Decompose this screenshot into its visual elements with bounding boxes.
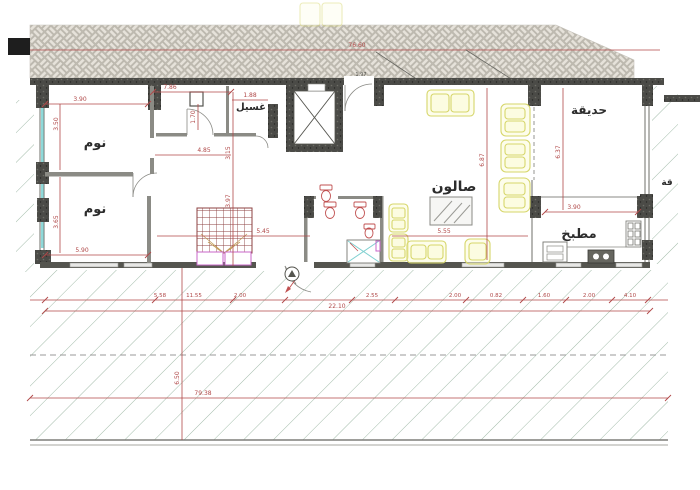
dim-row1-5: 0.82: [490, 293, 502, 299]
room-label-salon: صالون: [432, 179, 477, 195]
dim-hall-height: 1.70: [190, 110, 197, 124]
glazing-strip-1: [41, 100, 44, 168]
room-label-bedroom-bottom: نوم: [84, 202, 107, 217]
room-label-garden: حديقة: [571, 103, 607, 117]
dim-row1-7: 2.00: [583, 293, 596, 299]
dim-salon-height: 6.87: [479, 153, 486, 167]
dim-top-total: 76.60: [348, 42, 365, 49]
dim-row1-6: 1.60: [538, 293, 551, 299]
dim-hall-width: 7.86: [163, 84, 177, 91]
dim-b2-height: 3.65: [53, 215, 60, 229]
room-label-garden-partial: قة: [661, 178, 672, 188]
outdoor-hatch-right: [652, 86, 678, 264]
dim-row1-2: 2.00: [234, 293, 247, 299]
sofa-bottom: [407, 241, 446, 263]
stair-landing-1: [197, 252, 223, 265]
outdoor-hatch-bottom-field: [30, 270, 668, 445]
floor-plan-page: 76.60: [0, 0, 700, 490]
dim-row1-3: 2.55: [366, 293, 379, 299]
dim-shaft-height: 3.15: [225, 146, 232, 160]
dim-hall-inner: 4.85: [197, 147, 211, 154]
dim-b2-width: 5.90: [75, 247, 89, 254]
dim-stair-span: 5.45: [256, 228, 270, 235]
staircase: [197, 208, 252, 265]
room-label-laundry: غسيل: [236, 102, 266, 113]
room-label-bedroom-top: نوم: [84, 136, 107, 151]
dim-garden-height: 6.37: [555, 145, 562, 159]
dim-row3-total: 79.38: [194, 390, 211, 397]
sofa-corner: [465, 239, 490, 264]
dim-row1-1: 11.55: [186, 293, 202, 299]
sofa-right-3: [499, 178, 530, 212]
dim-b1-width: 3.90: [73, 96, 87, 103]
dim-laundry-width: 1.88: [243, 92, 257, 99]
sofa-right-2: [501, 140, 530, 172]
room-label-kitchen: مطبخ: [561, 227, 596, 242]
sofa-left-1: [389, 204, 408, 232]
shower-tray: [347, 240, 380, 263]
stove: [588, 250, 614, 263]
stair-landing-2: [225, 252, 251, 265]
sofa-top: [427, 90, 474, 116]
floor-slab: [44, 85, 646, 263]
neighbor-wall-stub: [8, 38, 30, 55]
dim-row1-0: 5.58: [154, 293, 167, 299]
outdoor-hatch-left: [16, 100, 34, 272]
door-tag: 1.97: [355, 72, 366, 78]
dim-b1-height: 3.50: [53, 117, 60, 131]
dim-stair-height: 3.97: [225, 194, 232, 208]
column-box: [190, 92, 203, 106]
pantry-grid: [626, 221, 641, 247]
dim-salon-span: 5.55: [437, 228, 451, 235]
elevator-shaft: [286, 83, 343, 152]
sofa-left-2: [389, 234, 408, 261]
sofa-right-1: [501, 104, 530, 136]
dim-kitchen-width: 3.90: [567, 204, 581, 211]
floor-plan-svg: 76.60: [0, 0, 700, 490]
dim-row1-8: 4.10: [624, 293, 637, 299]
dim-plot-depth: 6.50: [174, 371, 181, 385]
dim-row2-total: 22.10: [328, 303, 345, 310]
salon-rug: [430, 197, 472, 225]
shaft-door-sill: [308, 84, 325, 91]
dim-row1-4: 2.00: [449, 293, 462, 299]
